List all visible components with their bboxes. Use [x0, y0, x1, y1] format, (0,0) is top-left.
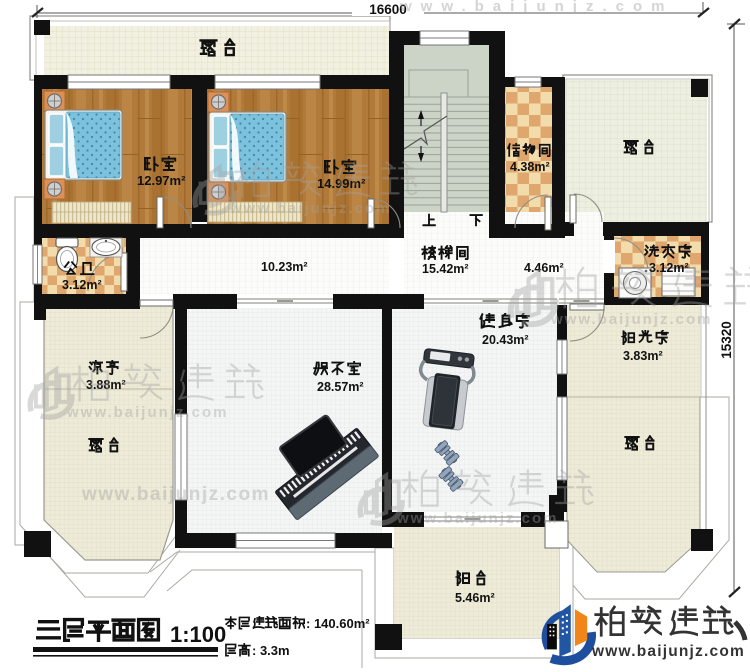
svg-text:1:100: 1:100 — [170, 622, 226, 647]
svg-text:4.46m²: 4.46m² — [524, 261, 564, 275]
svg-text:15320: 15320 — [719, 321, 734, 359]
svg-text:3.12m²: 3.12m² — [62, 278, 102, 292]
svg-text:4.38m²: 4.38m² — [510, 160, 550, 174]
svg-text:www.baijunjz.com: www.baijunjz.com — [550, 311, 712, 328]
svg-text:www.baijunjz.com: www.baijunjz.com — [396, 510, 558, 527]
svg-text:15.42m²: 15.42m² — [422, 262, 469, 276]
svg-text:20.43m²: 20.43m² — [482, 333, 529, 347]
svg-text:: 140.60m²: : 140.60m² — [306, 616, 370, 631]
svg-text:www.baijunjz.com: www.baijunjz.com — [66, 404, 228, 421]
svg-text:: 3.3m: : 3.3m — [252, 643, 290, 658]
svg-text:5.46m²: 5.46m² — [455, 591, 495, 605]
svg-text:28.57m²: 28.57m² — [317, 380, 364, 394]
svg-text:12.97m²: 12.97m² — [137, 173, 186, 188]
svg-text:3.12m²: 3.12m² — [649, 261, 689, 275]
svg-text:www.baijunjz.com: www.baijunjz.com — [81, 484, 270, 505]
svg-text:www.baijunjz.com: www.baijunjz.com — [399, 0, 673, 15]
svg-text:3.83m²: 3.83m² — [623, 349, 663, 363]
svg-text:10.23m²: 10.23m² — [261, 260, 308, 274]
svg-text:www.baijunjz.com: www.baijunjz.com — [591, 643, 745, 660]
svg-text:www.baijunjz.com: www.baijunjz.com — [229, 200, 391, 217]
